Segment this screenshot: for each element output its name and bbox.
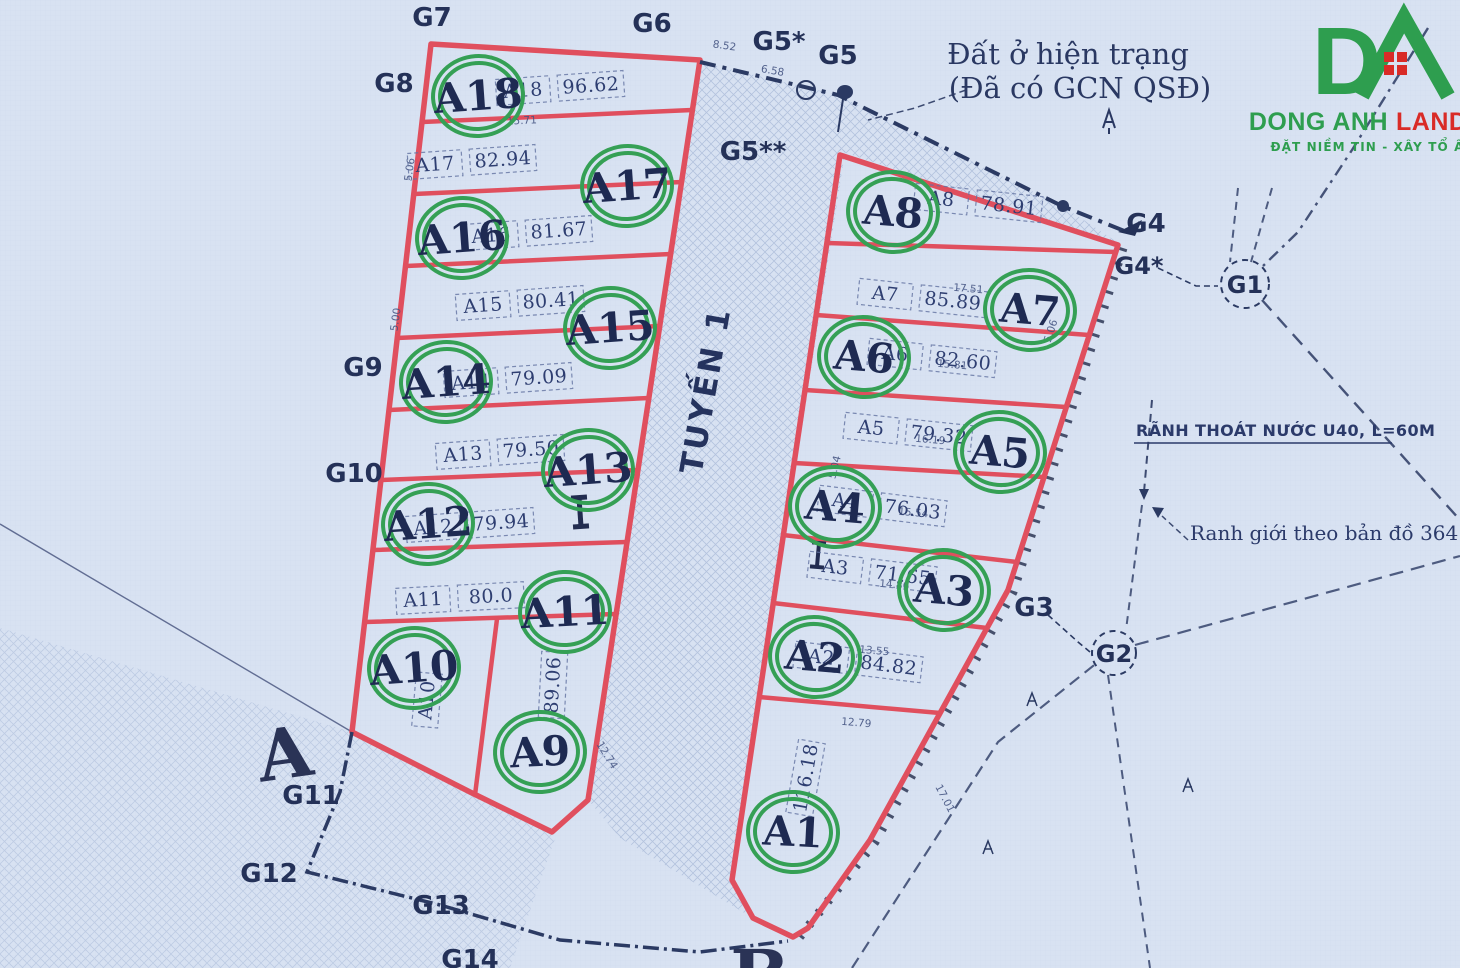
plot-label: A3 [911,563,976,616]
marker-g2: G2 [1096,640,1132,668]
marker-g6: G6 [632,9,671,39]
plot-label: A13 [541,443,634,497]
marker-g5: G5 [818,41,857,71]
plot-box-area: 81.67 [530,218,588,244]
plot-box-area: 96.62 [562,73,620,99]
plot-box-area: 79.94 [472,510,530,536]
plot-box-area: 82.94 [474,147,532,173]
boundary-dot [1057,200,1069,212]
plot-label: A11 [518,586,610,639]
marker-g7: G7 [412,3,451,33]
plot-label: A4 [802,480,867,533]
marker-g14: G14 [441,945,499,968]
plot-label: A2 [782,630,847,683]
plot-box-area: 80.0 [468,584,513,608]
plot-box-area: 89.06 [541,656,566,714]
marker-g12: G12 [240,859,298,889]
note-existing-line1: Đất ở hiện trạng [947,37,1189,71]
plot-label: A16 [415,211,508,265]
note-existing-line2: (Đã có GCN QSĐ) [949,71,1211,105]
logo-tagline: ĐẶT NIỀM TIN - XÂY TỔ ẤM [1270,137,1460,154]
plot-label: A18 [431,69,524,123]
plot-box-name: A13 [442,442,484,467]
plot-box-name: A5 [856,416,886,441]
cadastral-map: 15.71 17.51 15.81 16.19 15.54 14.86 13.5… [0,0,1460,968]
plot-box-name: A7 [870,282,900,307]
marker-g4s: G4* [1115,252,1164,280]
plot-box-area: 79.09 [510,365,568,391]
plot-label: A5 [967,425,1032,478]
marker-g4: G4 [1126,209,1165,239]
marker-g8: G8 [374,69,413,99]
marker-g10: G10 [325,459,383,489]
logo-name-red: LAND [1396,108,1460,136]
logo-name-green: DONG ANH [1249,108,1388,136]
marker-g3: G3 [1014,593,1053,623]
plot-label: A6 [831,330,896,383]
plot-label: A15 [563,301,656,355]
map-canvas: 15.71 17.51 15.81 16.19 15.54 14.86 13.5… [0,0,1460,968]
marker-g5s: G5* [752,27,805,57]
logo-d-glyph: D [1312,8,1381,115]
g5-blob-mark [837,85,853,99]
plot-label: A9 [508,726,572,777]
marker-g1: G1 [1227,271,1263,299]
plot-label: A10 [367,641,460,695]
corner-letter-b: B [730,934,789,968]
note-drain: RÃNH THOÁT NƯỚC U40, L=60M [1136,421,1435,440]
plot-box-name: A3 [820,555,850,580]
marker-g5ss: G5** [720,137,787,167]
plot-label: A12 [381,497,474,551]
marker-g13: G13 [412,891,470,921]
plot-label: A17 [580,159,673,213]
plot-label: A8 [860,185,925,238]
plot-box-name: A17 [414,152,456,177]
note-boundary364: Ranh giới theo bản đồ 364 [1190,521,1458,545]
plot-label: A14 [399,355,492,409]
plot-label: A7 [997,283,1062,336]
plot-box-name: A11 [402,588,444,612]
plot-label: A1 [761,806,825,857]
plot-box-name: A15 [462,293,504,318]
marker-g9: G9 [343,353,382,383]
